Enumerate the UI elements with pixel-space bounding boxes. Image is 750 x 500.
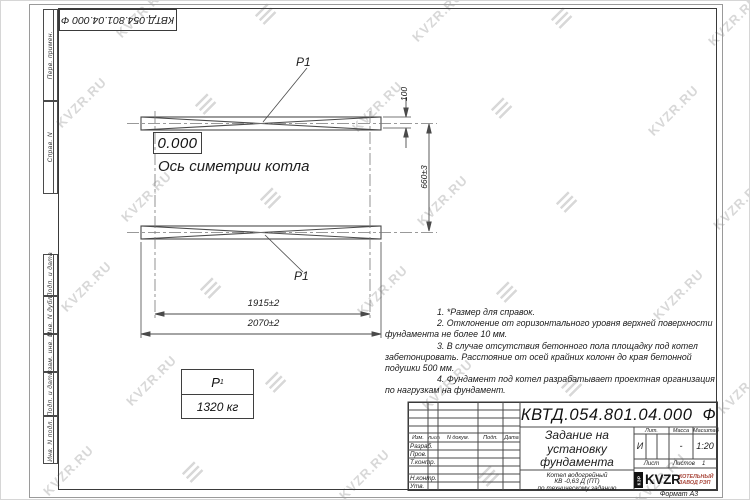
tb-sheet-label: Лист — [634, 461, 669, 467]
format-label: Формат А3 — [649, 491, 709, 498]
logo-kvzr-text: KVZR — [645, 472, 681, 487]
zero-level-box: 0.000 — [153, 132, 202, 154]
tb-mass-header: Масса — [669, 428, 693, 434]
dim-strip-width: 100 — [399, 81, 409, 107]
load-symbol: P1 — [182, 370, 253, 395]
tb-header-list: Лист — [428, 435, 438, 440]
note-line: 3. В случае отсутствия бетонного пола пл… — [385, 341, 715, 352]
tb-header-data: Дата — [503, 435, 520, 441]
logo-mark-box: КЗР — [634, 472, 643, 488]
tb-row-razrab: Разраб. — [410, 443, 433, 450]
zero-level-value: 0.000 — [157, 135, 197, 152]
doc-suffix: Ф — [702, 406, 716, 425]
note-line: по нагрузкам на фундамент. — [385, 385, 715, 396]
logo-subtitle: КОТЕЛЬНЫЙ ЗАВОД РЭП — [679, 474, 713, 486]
tb-lit-header: Лит. — [634, 428, 669, 434]
logo-mark-text: КЗР — [636, 475, 641, 485]
tb-sheets-label: Листов — [673, 461, 695, 467]
title-block-doc-number: КВТД.054.801.04.000 Ф — [522, 404, 715, 426]
title-line-2: установку — [521, 442, 633, 456]
note-line: 1. *Размер для справок. — [385, 307, 715, 318]
tb-row-utv: Утв. — [410, 483, 424, 490]
note-line: фундамента не более 10 мм. — [385, 329, 715, 340]
note-line: 4. Фундамент под котел разрабатывает про… — [385, 374, 715, 385]
note-line: забетонировать. Расстояние от осей крайн… — [385, 352, 715, 363]
tb-scale-header: Масштаб — [693, 428, 717, 434]
tb-row-tkontr: Т.контр. — [410, 459, 435, 466]
dim-outer-width: 2070±2 — [201, 318, 326, 329]
load-symbol-letter: P — [211, 375, 220, 390]
logo-subtitle-line: ЗАВОД РЭП — [679, 480, 713, 486]
load-table: P1 1320 кг — [181, 369, 254, 419]
load-value: 1320 кг — [182, 395, 253, 419]
note-line: подушки 500 мм. — [385, 363, 715, 374]
technical-notes: 1. *Размер для справок. 2. Отклонение от… — [385, 307, 715, 397]
p1-label-bottom: P1 — [294, 269, 309, 283]
tb-mass-value: - — [669, 441, 693, 451]
subtitle-line-3: по техническому заданию — [521, 485, 633, 492]
logo-subtitle-line: КОТЕЛЬНЫЙ — [679, 474, 713, 480]
tb-row-prov: Пров. — [410, 451, 427, 458]
tb-row-nkontr: Н.контр. — [410, 475, 437, 482]
tb-sheets-value: 1 — [702, 461, 705, 467]
tb-header-izm: Изм. — [408, 435, 428, 441]
tb-scale-value: 1:20 — [693, 441, 717, 451]
tb-header-podp: Подп. — [478, 435, 503, 441]
p1-label-top: P1 — [296, 55, 311, 69]
dim-strip-spacing: 660±3 — [419, 156, 429, 198]
doc-number: КВТД.054.801.04.000 — [521, 406, 693, 425]
load-symbol-index: 1 — [220, 379, 224, 386]
symmetry-axis-caption: Ось симетрии котла — [158, 158, 309, 175]
title-line-3: фундамента — [521, 455, 633, 469]
note-line: 2. Отклонение от горизонтального уровня … — [385, 318, 715, 329]
dim-inner-width: 1915±2 — [201, 298, 326, 309]
title-line-1: Задание на — [521, 429, 633, 443]
drawing-sheet: KVZR.RUKVZR.RUKVZR.RUKVZR.RUKVZR.RUKVZR.… — [0, 0, 750, 500]
tb-lit-value: И — [634, 441, 646, 451]
tb-header-ndokum: N докум. — [438, 435, 478, 441]
